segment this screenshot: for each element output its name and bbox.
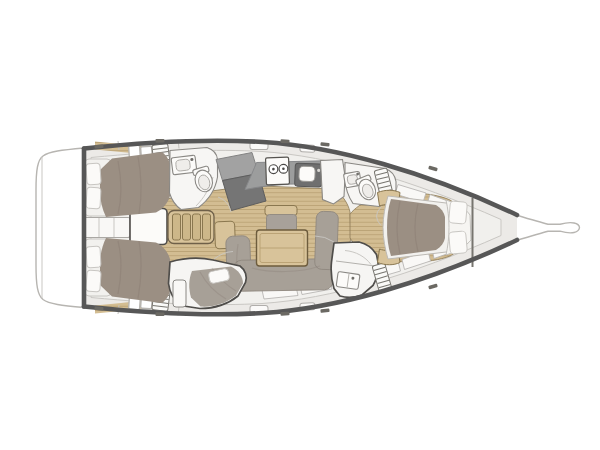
pillow [86,246,101,268]
galley-sink [295,163,323,187]
washbasin [336,272,360,290]
pillow [86,163,101,185]
pillow [449,231,468,254]
bench-back [265,206,297,216]
bed-duvet [100,152,170,217]
transom-locker [84,218,130,238]
pillow [86,187,101,209]
galley-stove [266,157,290,185]
swim-platform [36,148,84,308]
yacht-floor-plan [0,0,600,450]
bowsprit [516,215,580,241]
side-shelf [173,280,186,307]
bed-duvet [100,238,170,303]
pillow [449,201,468,224]
bed-duvet [387,199,445,256]
galley-cabinet [321,160,346,205]
pillow [86,270,101,292]
